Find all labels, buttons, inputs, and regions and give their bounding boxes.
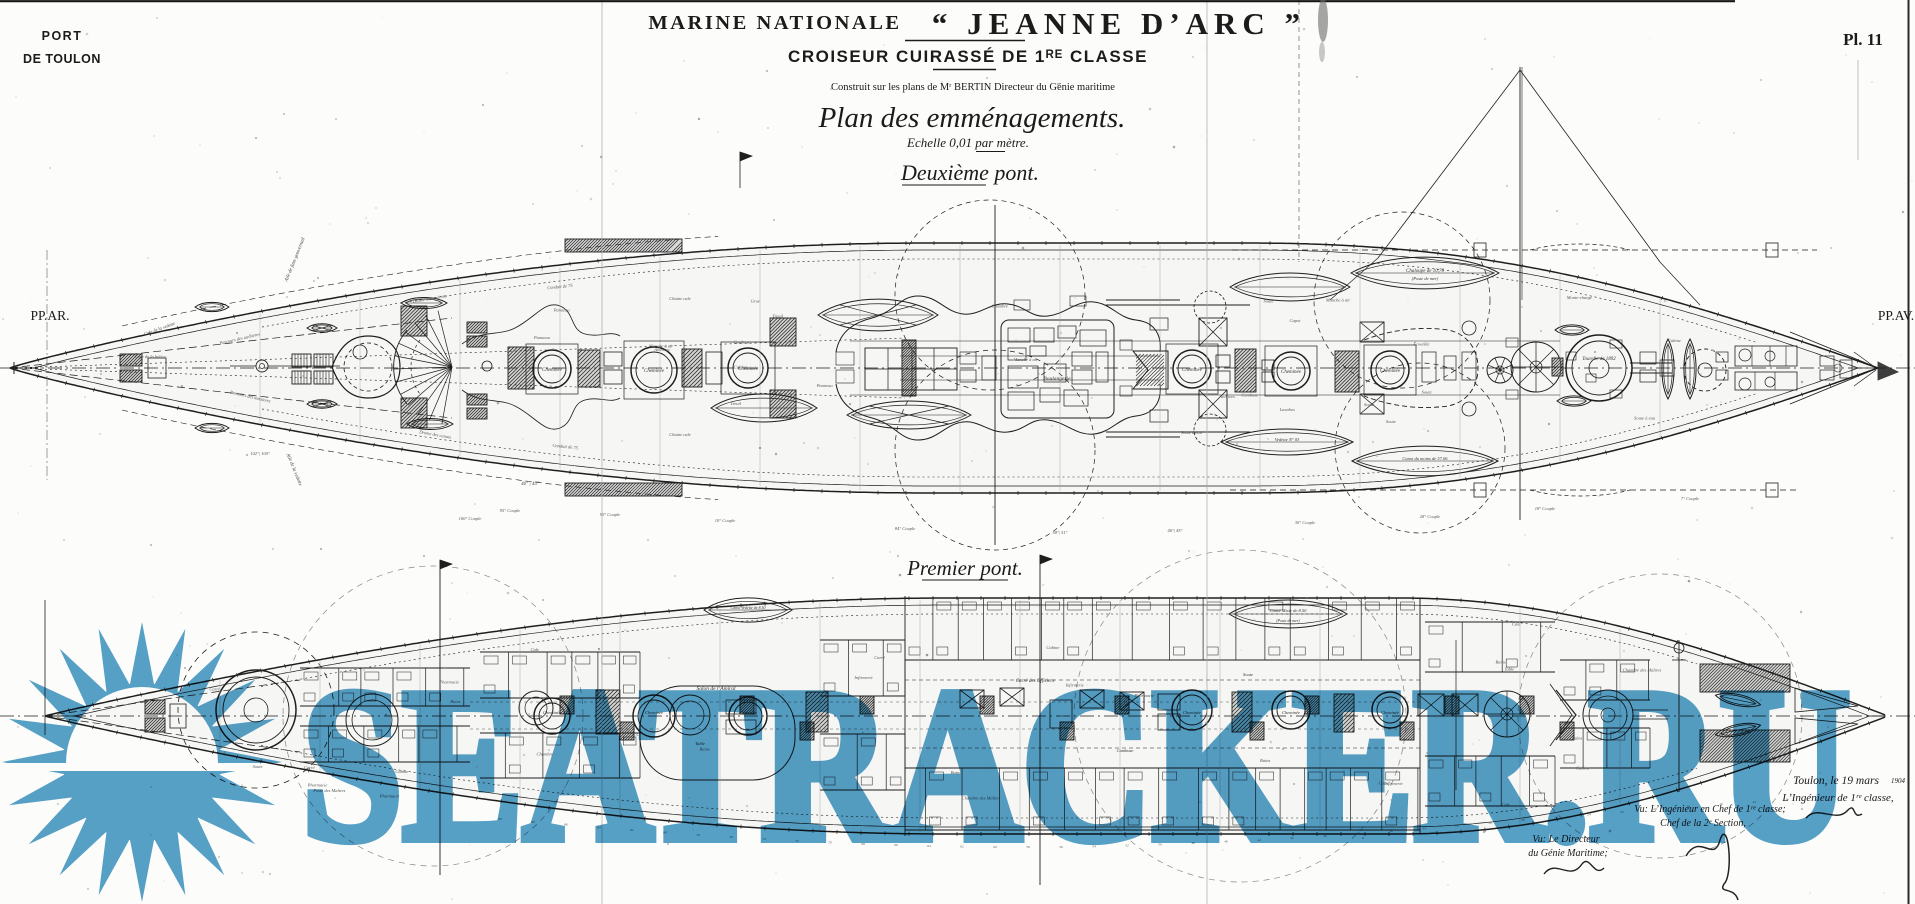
svg-text:SEATRACKER.RU: SEATRACKER.RU xyxy=(302,645,1850,886)
